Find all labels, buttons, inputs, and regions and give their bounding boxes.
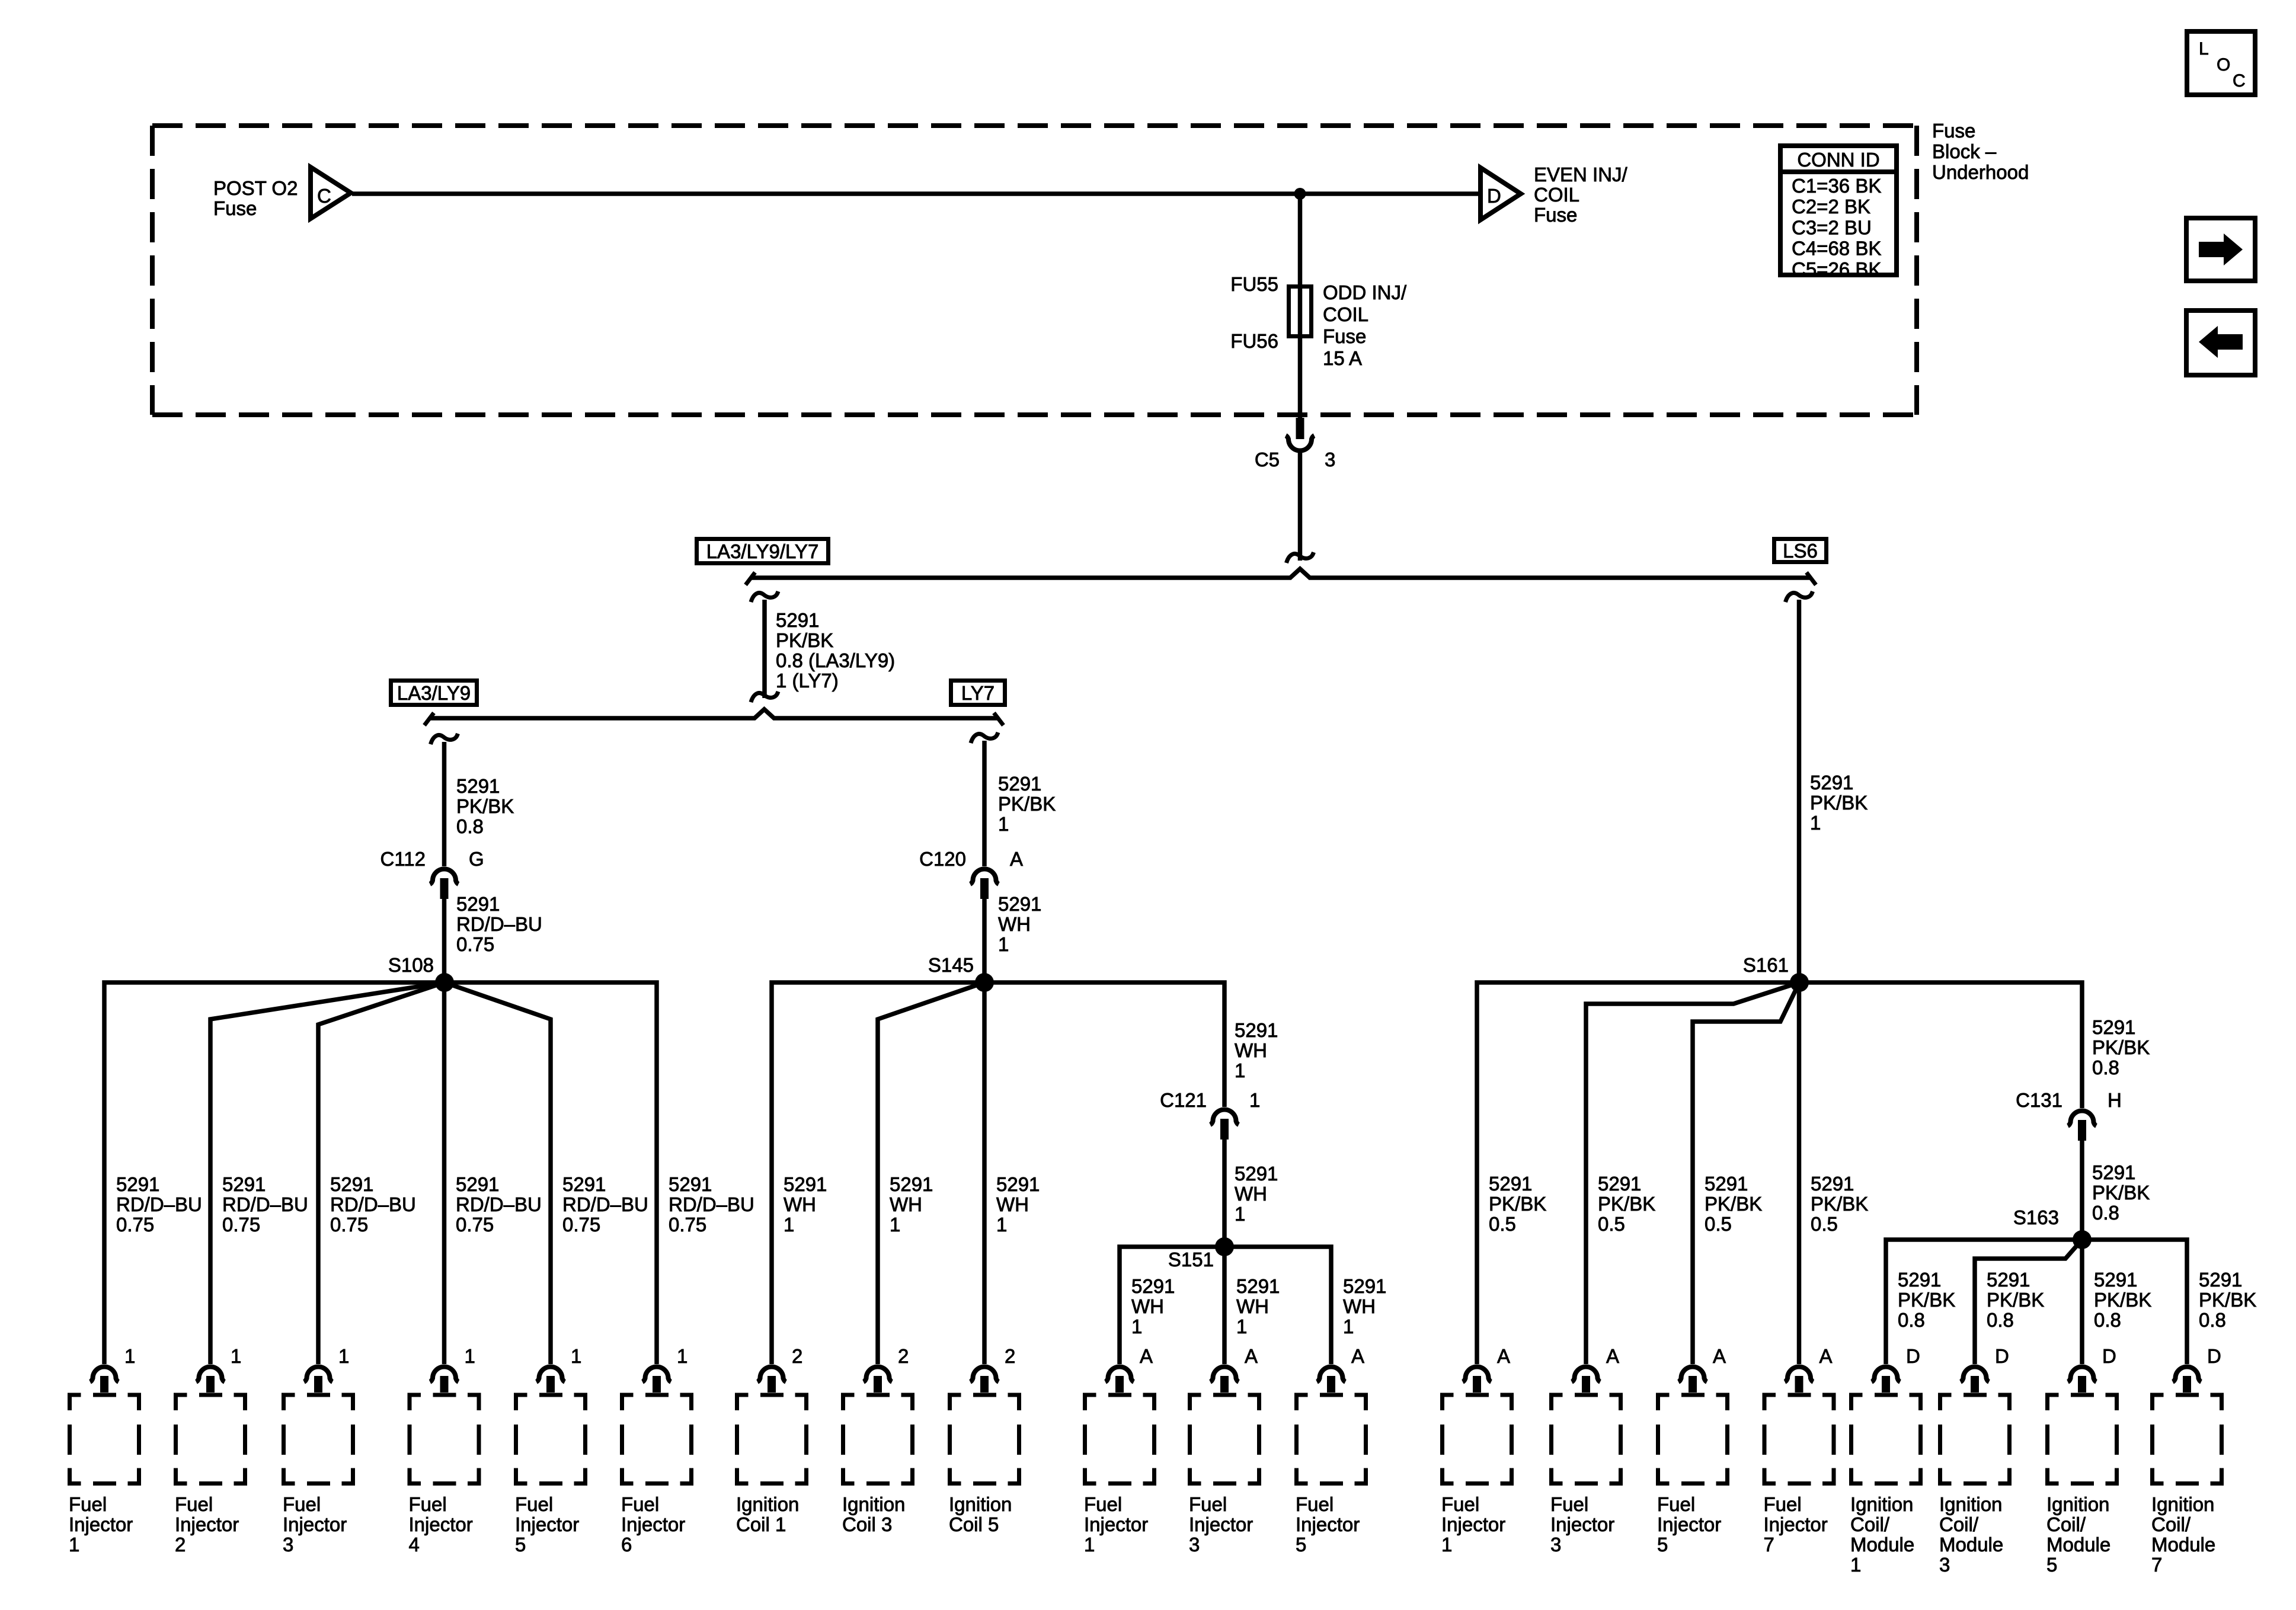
svg-text:Fuel: Fuel — [1441, 1493, 1479, 1515]
svg-text:Ignition: Ignition — [949, 1493, 1012, 1515]
svg-text:Injector: Injector — [283, 1513, 347, 1535]
svg-text:Block –: Block – — [1932, 140, 1997, 162]
svg-text:0.8: 0.8 — [2092, 1202, 2119, 1224]
svg-text:CONN ID: CONN ID — [1797, 149, 1879, 171]
svg-text:Module: Module — [2151, 1534, 2215, 1555]
svg-text:5291: 5291 — [2092, 1016, 2135, 1038]
svg-text:PK/BK: PK/BK — [1810, 792, 1868, 814]
svg-text:1: 1 — [890, 1214, 900, 1235]
svg-text:0.8: 0.8 — [456, 815, 484, 837]
svg-text:PK/BK: PK/BK — [456, 795, 514, 817]
svg-text:S145: S145 — [928, 954, 974, 976]
svg-text:Fuel: Fuel — [1189, 1493, 1227, 1515]
svg-text:Fuse: Fuse — [1534, 204, 1577, 226]
svg-text:Fuel: Fuel — [1084, 1493, 1122, 1515]
svg-text:Coil 5: Coil 5 — [949, 1513, 999, 1535]
svg-text:WH: WH — [1343, 1295, 1376, 1317]
svg-text:0.5: 0.5 — [1811, 1213, 1838, 1235]
svg-text:Injector: Injector — [1296, 1513, 1360, 1535]
svg-text:5291: 5291 — [784, 1173, 827, 1195]
svg-text:C3=2 BU: C3=2 BU — [1792, 216, 1872, 238]
svg-text:PK/BK: PK/BK — [1811, 1193, 1868, 1215]
svg-text:Ignition: Ignition — [1939, 1493, 2002, 1515]
svg-text:5291: 5291 — [2092, 1161, 2135, 1183]
svg-text:C: C — [317, 185, 331, 207]
svg-text:O: O — [2217, 55, 2230, 75]
svg-text:RD/D–BU: RD/D–BU — [562, 1193, 648, 1215]
svg-text:1: 1 — [998, 813, 1009, 835]
svg-text:Injector: Injector — [515, 1513, 579, 1535]
svg-text:0.75: 0.75 — [669, 1214, 706, 1235]
svg-text:Injector: Injector — [621, 1513, 685, 1535]
svg-text:C131: C131 — [2016, 1089, 2062, 1111]
svg-text:1: 1 — [1810, 812, 1821, 834]
svg-text:1: 1 — [1131, 1315, 1142, 1337]
svg-text:RD/D–BU: RD/D–BU — [330, 1193, 416, 1215]
svg-text:Fuel: Fuel — [1764, 1493, 1802, 1515]
svg-text:1: 1 — [338, 1345, 349, 1367]
svg-text:Injector: Injector — [69, 1513, 133, 1535]
svg-text:5291: 5291 — [1236, 1275, 1280, 1297]
svg-text:3: 3 — [1325, 449, 1335, 470]
svg-text:Module: Module — [1850, 1534, 1914, 1555]
svg-text:RD/D–BU: RD/D–BU — [456, 1193, 542, 1215]
svg-text:C5: C5 — [1255, 449, 1280, 470]
svg-text:RD/D–BU: RD/D–BU — [116, 1193, 202, 1215]
svg-text:15 A: 15 A — [1323, 347, 1362, 369]
svg-text:Injector: Injector — [1441, 1513, 1505, 1535]
svg-text:WH: WH — [1235, 1183, 1267, 1205]
svg-text:Coil/: Coil/ — [2151, 1513, 2191, 1535]
svg-text:D: D — [1906, 1345, 1920, 1367]
svg-text:1: 1 — [677, 1345, 687, 1367]
svg-text:0.8: 0.8 — [2094, 1309, 2121, 1331]
svg-text:A: A — [1140, 1345, 1153, 1367]
svg-text:1: 1 — [998, 933, 1009, 955]
svg-text:5291: 5291 — [1705, 1173, 1748, 1195]
svg-text:Fuse: Fuse — [1932, 120, 1975, 142]
svg-text:WH: WH — [890, 1193, 922, 1215]
svg-text:D: D — [2102, 1345, 2116, 1367]
svg-text:RD/D–BU: RD/D–BU — [456, 913, 542, 935]
svg-text:Fuel: Fuel — [409, 1493, 447, 1515]
svg-text:5: 5 — [1657, 1534, 1668, 1555]
svg-text:Fuel: Fuel — [1550, 1493, 1588, 1515]
svg-text:C: C — [2233, 71, 2246, 91]
svg-text:Fuel: Fuel — [283, 1493, 321, 1515]
svg-text:Coil/: Coil/ — [2046, 1513, 2086, 1535]
svg-text:PK/BK: PK/BK — [998, 793, 1056, 815]
svg-text:D: D — [1487, 185, 1501, 207]
svg-text:S108: S108 — [388, 954, 434, 976]
svg-text:5291: 5291 — [1235, 1019, 1278, 1041]
svg-text:Fuse: Fuse — [1323, 325, 1366, 347]
svg-text:Ignition: Ignition — [2046, 1493, 2109, 1515]
svg-text:2: 2 — [1005, 1345, 1015, 1367]
svg-text:PK/BK: PK/BK — [2092, 1182, 2150, 1204]
svg-text:Fuel: Fuel — [515, 1493, 553, 1515]
svg-text:5291: 5291 — [1898, 1269, 1941, 1291]
svg-text:Injector: Injector — [1550, 1513, 1614, 1535]
svg-text:PK/BK: PK/BK — [1705, 1193, 1762, 1215]
svg-text:Fuel: Fuel — [1296, 1493, 1334, 1515]
svg-text:1: 1 — [124, 1345, 135, 1367]
svg-text:0.5: 0.5 — [1489, 1213, 1516, 1235]
svg-text:Ignition: Ignition — [2151, 1493, 2214, 1515]
svg-text:5291: 5291 — [996, 1173, 1040, 1195]
svg-text:0.75: 0.75 — [116, 1214, 154, 1235]
svg-text:2: 2 — [898, 1345, 909, 1367]
svg-text:Fuel: Fuel — [69, 1493, 107, 1515]
svg-text:L: L — [2199, 39, 2209, 59]
svg-text:2: 2 — [175, 1534, 186, 1555]
svg-text:A: A — [1606, 1345, 1619, 1367]
svg-text:3: 3 — [1939, 1554, 1950, 1576]
svg-text:3: 3 — [283, 1534, 293, 1555]
svg-text:5291: 5291 — [776, 609, 819, 631]
svg-text:WH: WH — [784, 1193, 816, 1215]
svg-text:A: A — [1245, 1345, 1258, 1367]
svg-text:6: 6 — [621, 1534, 632, 1555]
svg-text:WH: WH — [1131, 1295, 1164, 1317]
svg-text:7: 7 — [2151, 1554, 2162, 1576]
svg-text:COIL: COIL — [1323, 303, 1368, 325]
svg-text:4: 4 — [409, 1534, 420, 1555]
svg-text:Fuel: Fuel — [175, 1493, 213, 1515]
svg-text:0.75: 0.75 — [222, 1214, 260, 1235]
svg-text:PK/BK: PK/BK — [2092, 1036, 2150, 1058]
svg-text:PK/BK: PK/BK — [1598, 1193, 1655, 1215]
svg-text:WH: WH — [1235, 1039, 1267, 1061]
svg-text:3: 3 — [1550, 1534, 1561, 1555]
svg-text:Injector: Injector — [1189, 1513, 1253, 1535]
svg-text:G: G — [469, 848, 484, 870]
svg-text:1: 1 — [1084, 1534, 1095, 1555]
svg-text:1: 1 — [1235, 1060, 1245, 1081]
svg-text:1: 1 — [465, 1345, 475, 1367]
svg-text:WH: WH — [1236, 1295, 1269, 1317]
svg-text:S161: S161 — [1743, 954, 1789, 976]
svg-text:5291: 5291 — [998, 773, 1041, 795]
svg-text:5291: 5291 — [562, 1173, 606, 1195]
svg-text:5291: 5291 — [1598, 1173, 1641, 1195]
svg-text:LY7: LY7 — [961, 682, 994, 704]
svg-text:Injector: Injector — [175, 1513, 239, 1535]
svg-text:5291: 5291 — [330, 1173, 373, 1195]
svg-text:Ignition: Ignition — [1850, 1493, 1913, 1515]
svg-text:5291: 5291 — [890, 1173, 933, 1195]
svg-text:ODD INJ/: ODD INJ/ — [1323, 281, 1407, 303]
svg-text:1: 1 — [784, 1214, 794, 1235]
svg-text:Fuse: Fuse — [213, 197, 257, 219]
svg-text:0.8: 0.8 — [1898, 1309, 1925, 1331]
svg-text:Injector: Injector — [1764, 1513, 1828, 1535]
svg-text:5291: 5291 — [1811, 1173, 1854, 1195]
svg-text:1: 1 — [231, 1345, 241, 1367]
svg-text:Fuel: Fuel — [621, 1493, 659, 1515]
svg-text:Coil 3: Coil 3 — [842, 1513, 892, 1535]
svg-text:WH: WH — [996, 1193, 1029, 1215]
svg-text:PK/BK: PK/BK — [1987, 1289, 2044, 1311]
svg-text:1: 1 — [1235, 1203, 1245, 1225]
svg-text:5291: 5291 — [456, 893, 500, 915]
svg-text:5291: 5291 — [2199, 1269, 2242, 1291]
svg-text:A: A — [1010, 848, 1023, 870]
svg-text:C4=68 BK: C4=68 BK — [1792, 238, 1881, 260]
svg-text:Coil/: Coil/ — [1850, 1513, 1890, 1535]
svg-text:1: 1 — [1249, 1089, 1260, 1111]
svg-text:RD/D–BU: RD/D–BU — [669, 1193, 754, 1215]
svg-text:5291: 5291 — [1343, 1275, 1386, 1297]
svg-text:LS6: LS6 — [1783, 540, 1818, 562]
svg-text:0.5: 0.5 — [1598, 1213, 1625, 1235]
svg-text:D: D — [1995, 1345, 2009, 1367]
svg-text:5291: 5291 — [1987, 1269, 2030, 1291]
svg-text:5: 5 — [515, 1534, 526, 1555]
svg-text:PK/BK: PK/BK — [2199, 1289, 2256, 1311]
svg-text:Injector: Injector — [1657, 1513, 1721, 1535]
svg-text:5291: 5291 — [1235, 1163, 1278, 1185]
svg-text:0.75: 0.75 — [456, 933, 494, 955]
svg-text:FU55: FU55 — [1230, 273, 1278, 295]
svg-text:C120: C120 — [919, 848, 966, 870]
svg-text:0.75: 0.75 — [456, 1214, 494, 1235]
svg-text:Injector: Injector — [1084, 1513, 1148, 1535]
svg-text:7: 7 — [1764, 1534, 1774, 1555]
svg-text:3: 3 — [1189, 1534, 1200, 1555]
svg-text:0.5: 0.5 — [1705, 1213, 1732, 1235]
svg-text:5291: 5291 — [998, 893, 1041, 915]
svg-text:1: 1 — [996, 1214, 1007, 1235]
svg-text:EVEN INJ/: EVEN INJ/ — [1534, 164, 1628, 185]
svg-text:H: H — [2108, 1089, 2122, 1111]
svg-text:C121: C121 — [1160, 1089, 1207, 1111]
svg-text:LA3/LY9: LA3/LY9 — [397, 682, 471, 704]
svg-text:POST O2: POST O2 — [213, 177, 298, 199]
svg-text:C1=36 BK: C1=36 BK — [1792, 175, 1881, 197]
svg-text:0.8: 0.8 — [2092, 1057, 2119, 1078]
svg-text:1: 1 — [1850, 1554, 1861, 1576]
svg-text:A: A — [1351, 1345, 1364, 1367]
svg-text:Ignition: Ignition — [736, 1493, 799, 1515]
svg-text:S163: S163 — [2013, 1206, 2059, 1228]
svg-text:FU56: FU56 — [1230, 330, 1278, 352]
svg-text:Module: Module — [1939, 1534, 2003, 1555]
svg-text:Fuel: Fuel — [1657, 1493, 1695, 1515]
svg-text:A: A — [1819, 1345, 1833, 1367]
svg-text:Coil 1: Coil 1 — [736, 1513, 786, 1535]
svg-text:5291: 5291 — [1489, 1173, 1532, 1195]
svg-text:0.8 (LA3/LY9): 0.8 (LA3/LY9) — [776, 649, 895, 671]
svg-text:PK/BK: PK/BK — [776, 629, 833, 651]
svg-text:5291: 5291 — [1131, 1275, 1175, 1297]
svg-text:5: 5 — [2046, 1554, 2057, 1576]
svg-text:Injector: Injector — [409, 1513, 473, 1535]
svg-text:LA3/LY9/LY7: LA3/LY9/LY7 — [706, 540, 819, 562]
svg-text:1: 1 — [1441, 1534, 1452, 1555]
svg-text:1: 1 — [571, 1345, 581, 1367]
svg-text:5291: 5291 — [116, 1173, 159, 1195]
svg-text:5291: 5291 — [456, 775, 500, 797]
svg-text:5291: 5291 — [456, 1173, 499, 1195]
svg-text:PK/BK: PK/BK — [1898, 1289, 1955, 1311]
svg-text:Ignition: Ignition — [842, 1493, 905, 1515]
svg-text:5291: 5291 — [2094, 1269, 2137, 1291]
svg-text:0.8: 0.8 — [2199, 1309, 2226, 1331]
svg-text:5291: 5291 — [1810, 772, 1853, 793]
svg-text:5291: 5291 — [669, 1173, 712, 1195]
svg-text:0.75: 0.75 — [330, 1214, 368, 1235]
svg-text:C5=26 BK: C5=26 BK — [1792, 258, 1881, 280]
svg-text:PK/BK: PK/BK — [2094, 1289, 2151, 1311]
svg-text:WH: WH — [998, 913, 1031, 935]
svg-text:RD/D–BU: RD/D–BU — [222, 1193, 308, 1215]
svg-text:C112: C112 — [380, 848, 426, 870]
svg-text:PK/BK: PK/BK — [1489, 1193, 1546, 1215]
svg-text:1: 1 — [69, 1534, 79, 1555]
svg-text:0.8: 0.8 — [1987, 1309, 2014, 1331]
svg-text:A: A — [1713, 1345, 1726, 1367]
svg-text:5: 5 — [1296, 1534, 1306, 1555]
svg-text:Coil/: Coil/ — [1939, 1513, 1979, 1535]
svg-text:COIL: COIL — [1534, 184, 1579, 206]
svg-text:5291: 5291 — [222, 1173, 266, 1195]
svg-text:C2=2 BK: C2=2 BK — [1792, 196, 1870, 217]
svg-text:Module: Module — [2046, 1534, 2110, 1555]
svg-text:2: 2 — [792, 1345, 802, 1367]
svg-text:0.75: 0.75 — [562, 1214, 600, 1235]
svg-text:S151: S151 — [1168, 1249, 1214, 1270]
svg-text:A: A — [1497, 1345, 1510, 1367]
svg-text:1: 1 — [1343, 1315, 1354, 1337]
svg-text:Underhood: Underhood — [1932, 161, 2029, 183]
svg-text:D: D — [2207, 1345, 2221, 1367]
svg-text:1: 1 — [1236, 1315, 1247, 1337]
svg-text:1 (LY7): 1 (LY7) — [776, 670, 839, 692]
